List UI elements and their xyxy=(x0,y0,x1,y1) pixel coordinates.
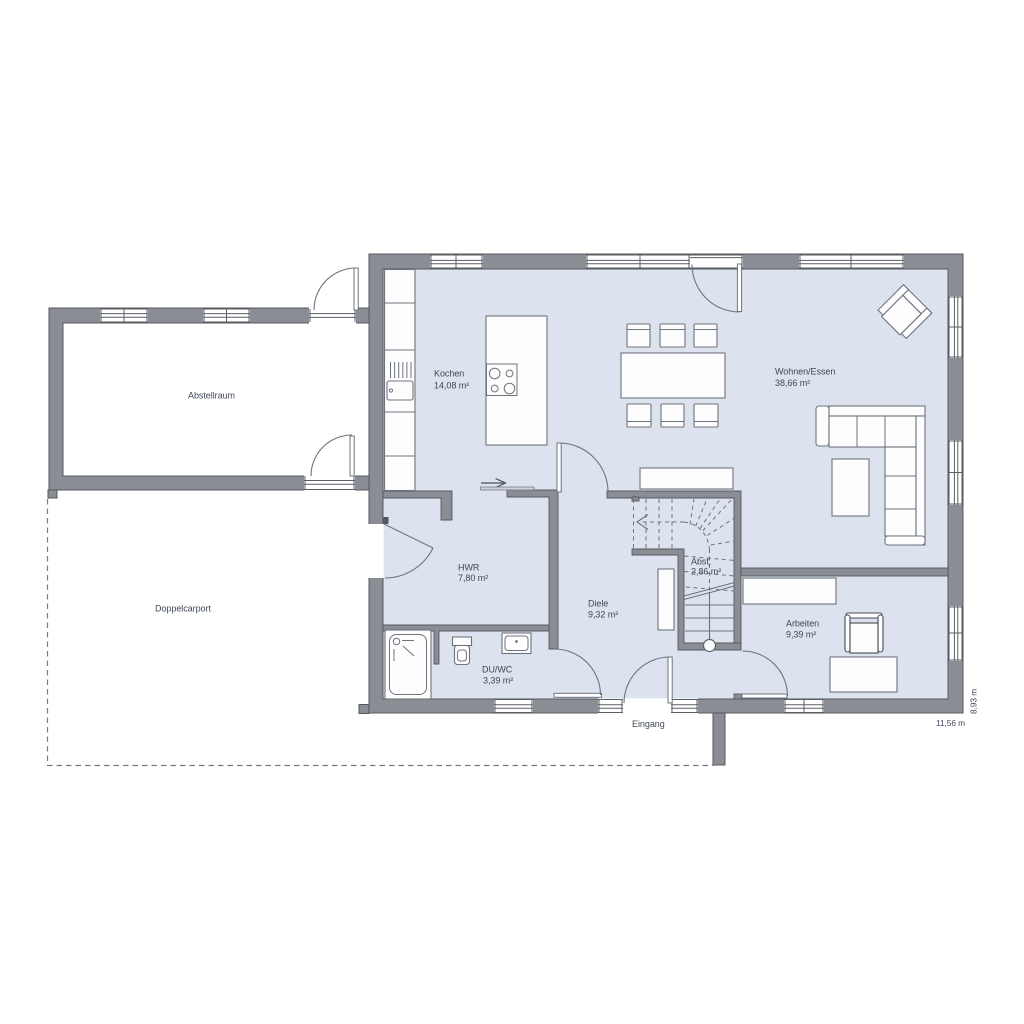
svg-text:3,39 m²: 3,39 m² xyxy=(483,676,513,686)
svg-text:HWR: HWR xyxy=(458,562,480,572)
svg-text:Kochen: Kochen xyxy=(434,369,464,379)
svg-text:Abst.: Abst. xyxy=(691,557,711,567)
svg-text:14,08 m²: 14,08 m² xyxy=(434,381,469,391)
svg-text:9,32 m²: 9,32 m² xyxy=(588,609,618,619)
svg-text:Arbeiten: Arbeiten xyxy=(786,619,819,629)
svg-text:Doppelcarport: Doppelcarport xyxy=(155,604,211,614)
svg-text:Abstellraum: Abstellraum xyxy=(188,391,235,401)
svg-text:DU/WC: DU/WC xyxy=(482,665,513,675)
svg-text:Diele: Diele xyxy=(588,598,608,608)
svg-text:2,86 m²: 2,86 m² xyxy=(691,567,721,577)
svg-text:11,56 m: 11,56 m xyxy=(936,718,965,728)
svg-text:38,66 m²: 38,66 m² xyxy=(775,378,810,388)
svg-text:8,93 m: 8,93 m xyxy=(969,689,979,714)
svg-text:9,39 m²: 9,39 m² xyxy=(786,630,816,640)
svg-text:Wohnen/Essen: Wohnen/Essen xyxy=(775,366,835,376)
svg-text:7,80 m²: 7,80 m² xyxy=(458,573,488,583)
svg-text:Eingang: Eingang xyxy=(632,719,665,729)
